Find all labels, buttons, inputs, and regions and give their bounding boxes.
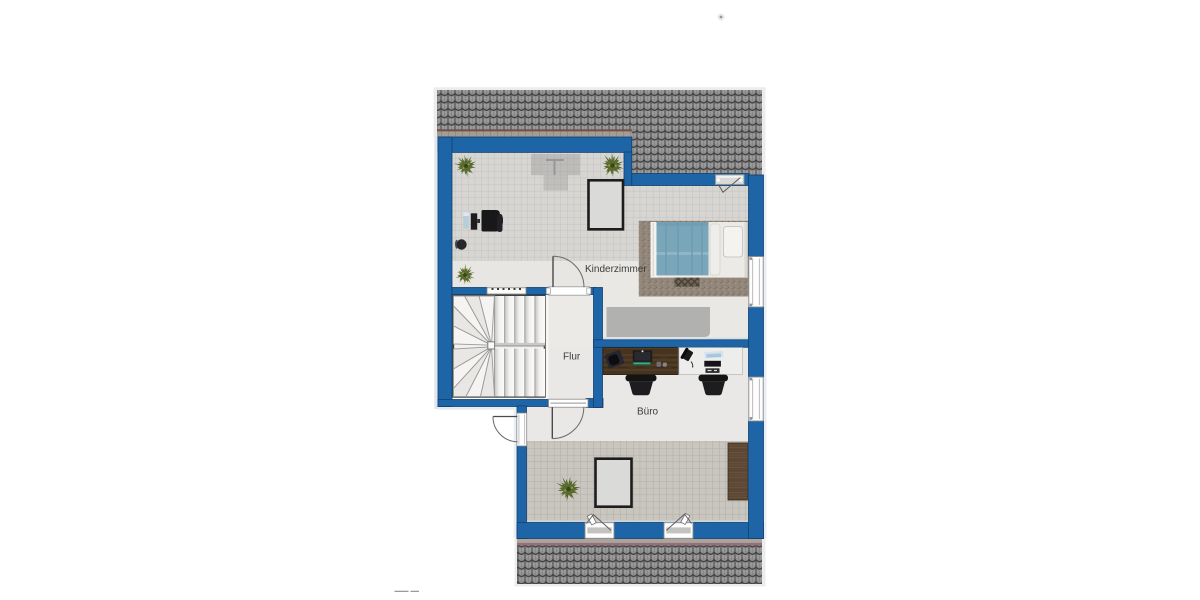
svg-text:Kinderzimmer: Kinderzimmer xyxy=(585,264,647,275)
svg-text:Flur: Flur xyxy=(563,352,581,363)
svg-text:Büro: Büro xyxy=(637,407,659,418)
